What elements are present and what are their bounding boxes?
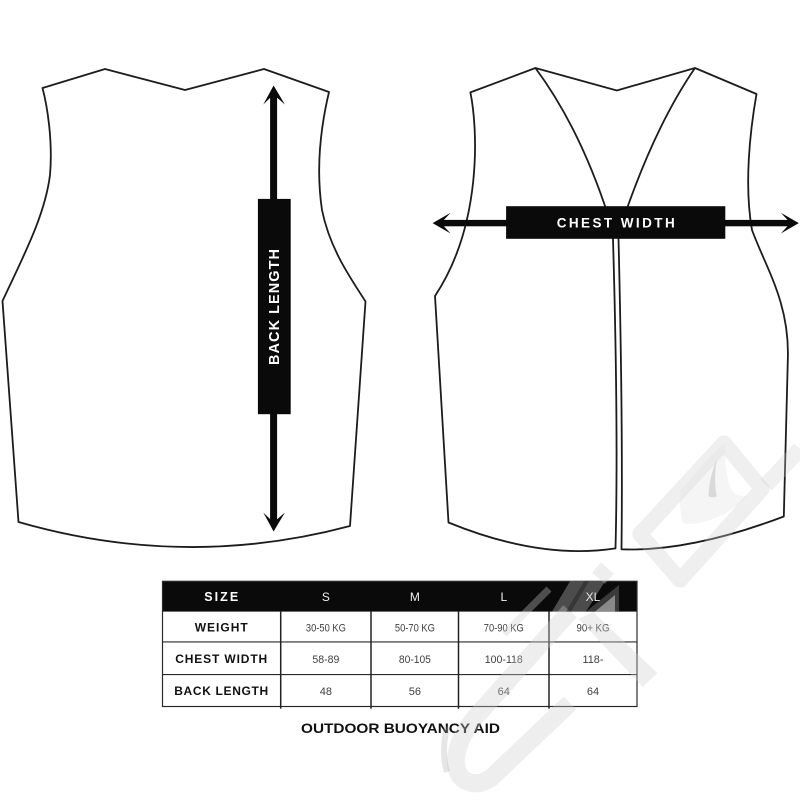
svg-text:64: 64 [587, 686, 599, 698]
svg-text:CHEST WIDTH: CHEST WIDTH [175, 652, 267, 666]
svg-text:L: L [500, 590, 507, 604]
svg-text:50-70 KG: 50-70 KG [395, 623, 435, 635]
svg-text:SIZE: SIZE [204, 590, 238, 604]
svg-text:M: M [410, 590, 420, 604]
svg-text:56: 56 [409, 686, 421, 698]
svg-text:CHEST WIDTH: CHEST WIDTH [557, 215, 675, 230]
svg-text:80-105: 80-105 [399, 654, 431, 666]
svg-text:BACK LENGTH: BACK LENGTH [174, 684, 268, 698]
svg-text:58-89: 58-89 [312, 654, 339, 666]
svg-text:BACK LENGTH: BACK LENGTH [267, 249, 283, 365]
svg-text:48: 48 [320, 686, 332, 698]
svg-text:118-: 118- [583, 654, 604, 666]
svg-text:WEIGHT: WEIGHT [195, 621, 249, 635]
svg-text:30-50 KG: 30-50 KG [306, 623, 346, 635]
svg-text:S: S [322, 590, 330, 604]
